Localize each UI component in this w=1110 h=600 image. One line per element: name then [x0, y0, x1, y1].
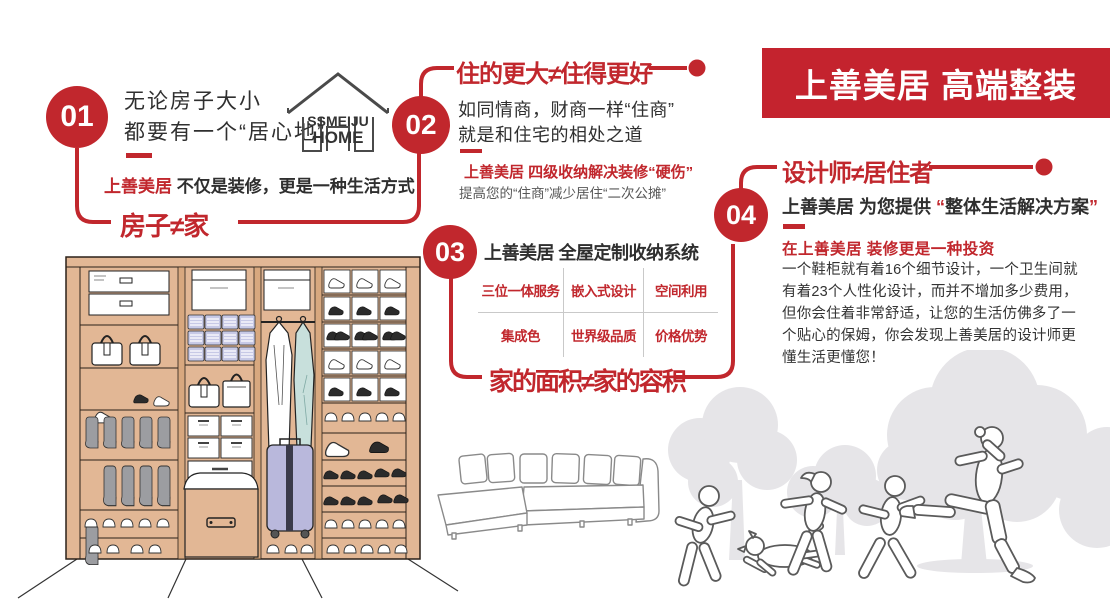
step-circle-03: 03 [423, 225, 477, 279]
step-number: 04 [726, 200, 756, 231]
suitcase [267, 439, 313, 538]
step-number: 01 [60, 100, 93, 134]
step-number: 03 [435, 237, 465, 268]
brand-banner: 上善美居 高端整装 [762, 48, 1110, 118]
s1-red-dash [126, 153, 152, 158]
s4-red-dash [783, 224, 805, 229]
grid-cell: 三位一体服务 [478, 268, 564, 313]
grid-cell: 嵌入式设计 [564, 268, 644, 313]
poster: 上善美居 高端整装 01 02 03 04 无论房子大小 都要有一个“居心地” … [0, 0, 1110, 600]
sofa-illustration [432, 445, 682, 540]
s3-label: 家的面积≠家的容积 [489, 362, 685, 398]
s1-brand: 上善美居 [104, 177, 172, 196]
grid-cell: 集成色 [478, 313, 564, 357]
s4-lead-black: 上善美居 为您提供 [782, 197, 931, 217]
s4-quote-open: “ [936, 197, 945, 217]
grid-cell: 空间利用 [644, 268, 718, 313]
step-circle-02: 02 [392, 96, 450, 154]
s2-gray-line: 提高您的“住商”减少居住“二次公摊” [459, 182, 666, 202]
s2-title: 住的更大≠住得更好 [456, 54, 652, 89]
s1-slogan-rest: 不仅是装修，更是一种生活方式 [177, 177, 415, 196]
s1-label: 房子≠家 [120, 206, 208, 243]
home-logo: SSMEIJU HOME [280, 66, 398, 158]
grid-cell: 世界级品质 [564, 313, 644, 357]
s2-line2: 就是和住宅的相处之道 [458, 121, 643, 147]
s4-red-line: 在上善美居 装修更是一种投资 [782, 237, 995, 259]
grid-cell: 价格优势 [644, 313, 718, 357]
s3-feature-grid: 三位一体服务 嵌入式设计 空间利用 集成色 世界级品质 价格优势 [478, 268, 718, 357]
banner-title: 上善美居 高端整装 [795, 59, 1077, 107]
s3-heading: 上善美居 全屋定制收纳系统 [484, 239, 699, 265]
s1-line1: 无论房子大小 [124, 85, 262, 115]
s1-slogan: 上善美居 不仅是装修，更是一种生活方式 [104, 172, 415, 197]
dot-end-s2 [689, 60, 706, 77]
s4-lead: 上善美居 为您提供 “整体生活解决方案” [782, 193, 1098, 219]
s2-red-dash [460, 149, 482, 153]
step-circle-04: 04 [714, 188, 768, 242]
s2-red-line: 上善美居 四级收纳解决装修“硬伤” [464, 161, 693, 182]
ottoman [184, 473, 258, 557]
logo-text-1: SSMEIJU [307, 113, 368, 129]
roof-outline [288, 74, 388, 113]
s4-title: 设计师≠居住者 [782, 153, 932, 188]
step-circle-01: 01 [46, 86, 108, 148]
s4-paragraph: 一个鞋柜就有着16个细节设计，一个卫生间就有着23个人性化设计，而并不增加多少费… [782, 259, 1078, 369]
dot-end-s4 [1036, 159, 1053, 176]
s4-lead-quoted: 整体生活解决方案 [945, 197, 1089, 217]
s2-line1: 如同情商，财商一样“住商” [458, 96, 675, 122]
logo-text-2: HOME [313, 128, 364, 147]
step-number: 02 [405, 109, 436, 141]
s4-quote-close: ” [1089, 197, 1098, 217]
